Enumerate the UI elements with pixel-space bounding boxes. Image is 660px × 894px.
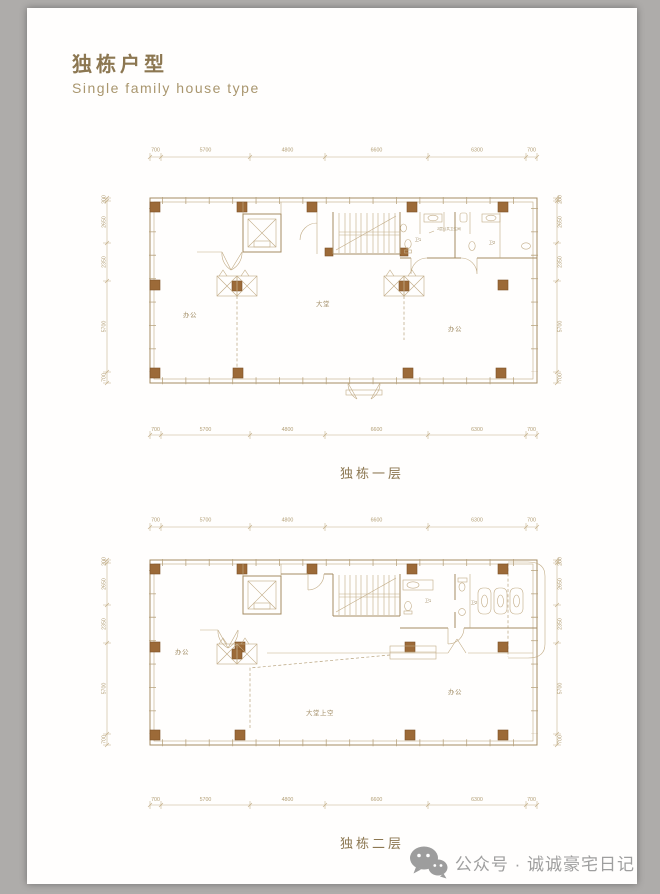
- dim-label: 5700: [102, 321, 108, 333]
- floor1-room-right-label: 办公: [448, 324, 462, 333]
- page-card: 独栋户型 Single family house type 700 5700 4…: [27, 8, 637, 884]
- floor2-terrace-outline: [508, 562, 545, 658]
- floor1-entrance-door: [346, 383, 382, 399]
- floor1-staircase: [300, 212, 400, 254]
- floor2-wc2-label: 卫2: [471, 600, 478, 605]
- dim-label: 200: [102, 195, 108, 204]
- dim-label: 6600: [371, 148, 383, 154]
- dim-label: 4800: [282, 148, 294, 154]
- dim-label: 5700: [558, 683, 564, 695]
- dim-label: 2650: [558, 578, 564, 590]
- dim-label: 2650: [102, 578, 108, 590]
- floor1-wc2-label: 卫2: [489, 240, 496, 245]
- dim-label: 2350: [558, 618, 564, 630]
- dim-label: 6300: [471, 148, 483, 154]
- floor1-walls: [150, 198, 537, 383]
- floor1-plan-drawing: 700 5700 4800 6600 6300 700 700 5700 480…: [88, 140, 582, 490]
- floor1-wc-note: 2层公共卫生间: [437, 226, 461, 231]
- dim-label: 6600: [371, 518, 383, 524]
- dim-label: 700: [527, 427, 536, 433]
- floor1-top-dimension: 700 5700 4800 6600 6300 700: [148, 148, 539, 162]
- dim-label: 700: [558, 373, 564, 382]
- floor2-plan-drawing: 700 5700 4800 6600 6300 700 700 5700 480…: [88, 505, 582, 855]
- dim-label: 6600: [371, 797, 383, 803]
- floor1-caption: 独栋一层: [147, 463, 597, 482]
- dim-label: 700: [151, 148, 160, 154]
- floor2-bathrooms: 卫1 卫2: [400, 574, 537, 644]
- floor2-lobby-door: [200, 630, 238, 648]
- dim-label: 4800: [282, 797, 294, 803]
- dim-label: 2350: [102, 618, 108, 630]
- floor1-room-left-label: 办公: [183, 310, 197, 319]
- dim-label: 200: [102, 557, 108, 566]
- dim-label: 700: [527, 148, 536, 154]
- dim-label: 6600: [371, 427, 383, 433]
- page-title: 独栋户型: [72, 48, 168, 77]
- floor2-room-left-label: 办公: [175, 647, 189, 656]
- dim-label: 700: [102, 735, 108, 744]
- dim-label: 700: [558, 735, 564, 744]
- floor2-right-dimension: 200 2650 2350 5700 700: [553, 557, 564, 747]
- dim-label: 700: [151, 518, 160, 524]
- watermark: 公众号 · 诚诚豪宅日记: [408, 844, 635, 880]
- dim-label: 5700: [102, 683, 108, 695]
- dim-label: 5700: [200, 518, 212, 524]
- floor2-wc1-label: 卫1: [425, 598, 432, 603]
- dim-label: 4800: [282, 518, 294, 524]
- floor2-top-dimension: 700 5700 4800 6600 6300 700: [148, 518, 539, 532]
- dim-label: 6300: [471, 797, 483, 803]
- floor1-bottom-dimension: 700 5700 4800 6600 6300 700: [148, 427, 539, 439]
- dim-label: 5700: [200, 427, 212, 433]
- dim-label: 2650: [102, 216, 108, 228]
- floor1-left-dimension: 200 2650 2350 5700 700: [102, 195, 112, 385]
- floor1-bathrooms: 卫1 卫2 2层公共卫生间: [400, 212, 537, 274]
- dim-label: 700: [151, 427, 160, 433]
- floor2-walls: [150, 560, 537, 745]
- dim-label: 700: [527, 518, 536, 524]
- dim-label: 6300: [471, 427, 483, 433]
- dim-label: 6300: [471, 518, 483, 524]
- floor1-elevator: [243, 202, 281, 252]
- floor2-elevator: [243, 564, 281, 614]
- dim-label: 700: [527, 797, 536, 803]
- dim-label: 5700: [200, 797, 212, 803]
- dim-label: 200: [558, 195, 564, 204]
- dim-label: 5700: [200, 148, 212, 154]
- floor2-staircase: [281, 574, 400, 616]
- floor1-feature-clusters: [217, 270, 424, 368]
- floor2-bottom-dimension: 700 5700 4800 6600 6300 700: [148, 797, 539, 809]
- dim-label: 2650: [558, 216, 564, 228]
- floor1-room-center-label: 大堂: [316, 299, 330, 308]
- dim-label: 2350: [558, 256, 564, 268]
- dim-label: 5700: [558, 321, 564, 333]
- floor2-room-center-label: 大堂上空: [306, 708, 334, 717]
- floor1-lobby-door: [197, 252, 242, 270]
- watermark-text: 公众号 · 诚诚豪宅日记: [455, 850, 635, 875]
- dim-label: 2350: [102, 256, 108, 268]
- floor2-left-dimension: 200 2650 2350 5700 700: [102, 557, 112, 747]
- floor1-right-dimension: 200 2650 2350 5700 700: [553, 195, 564, 385]
- floor2-void-railing: [250, 639, 533, 728]
- dim-label: 200: [558, 557, 564, 566]
- floor2-room-right-label: 办公: [448, 687, 462, 696]
- dim-label: 700: [151, 797, 160, 803]
- wechat-icon: [408, 845, 448, 879]
- floor1-wc1-label: 卫1: [415, 237, 422, 242]
- dim-label: 4800: [282, 427, 294, 433]
- dim-label: 700: [102, 373, 108, 382]
- page-subtitle: Single family house type: [72, 80, 260, 96]
